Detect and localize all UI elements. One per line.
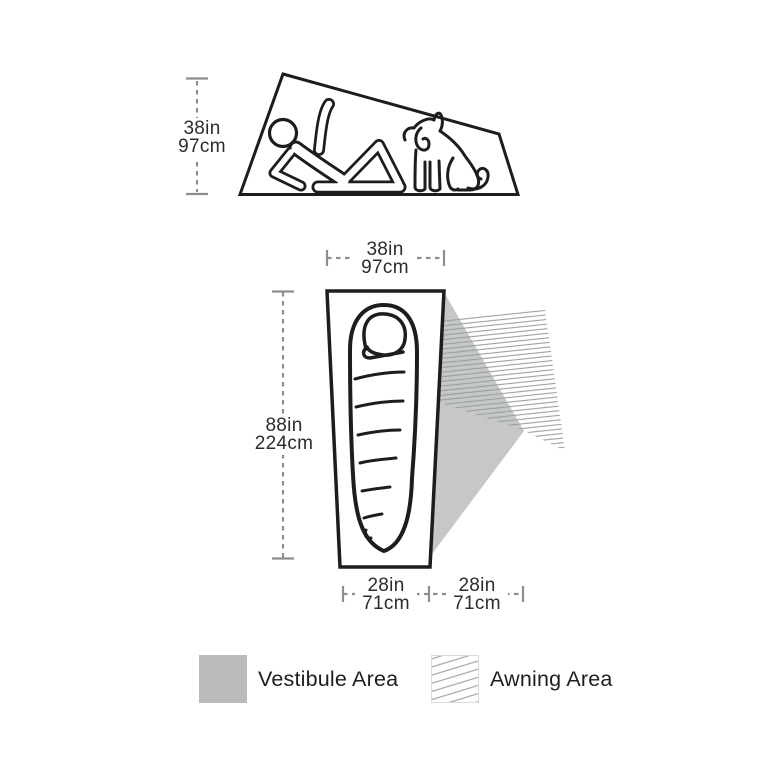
vestibule-swatch xyxy=(199,655,247,703)
tent-side-view xyxy=(186,74,518,195)
dimension-label-length: 88in 224cm xyxy=(247,415,321,455)
awning-swatch-hatch xyxy=(431,655,479,703)
dimension-value-cm: 71cm xyxy=(355,595,417,613)
dimension-value-cm: 97cm xyxy=(353,259,417,277)
dimension-value-cm: 224cm xyxy=(247,435,321,453)
dimension-value-cm: 97cm xyxy=(170,138,234,156)
legend-label-vestibule: Vestibule Area xyxy=(258,653,398,705)
dimension-value-cm: 71cm xyxy=(446,595,508,613)
dimension-label-foot-width: 28in 71cm xyxy=(355,575,417,615)
dimension-label-head-width: 38in 97cm xyxy=(353,239,417,279)
tent-dimensions-diagram: 38in 97cm 38in 97cm 88in 224cm 28in 71cm… xyxy=(0,0,780,780)
dimension-label-side-height: 38in 97cm xyxy=(170,118,234,158)
awning-swatch xyxy=(431,655,479,703)
sleeping-bag-icon xyxy=(350,305,417,551)
dimension-label-vestibule-width: 28in 71cm xyxy=(446,575,508,615)
legend-label-awning: Awning Area xyxy=(490,653,613,705)
